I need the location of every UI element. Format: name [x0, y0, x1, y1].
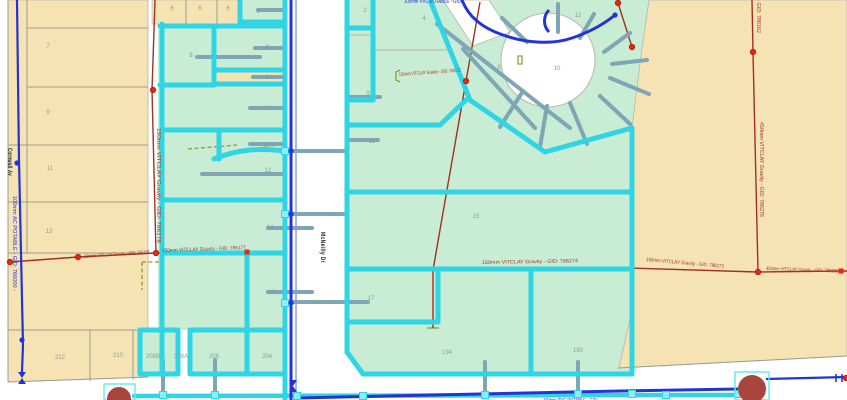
sewer-node[interactable]: [755, 269, 761, 275]
sewer-node[interactable]: [150, 87, 156, 93]
parcel-label: 14: [267, 225, 274, 231]
parcel-label: 194: [442, 350, 453, 356]
fitting-node[interactable]: [575, 391, 582, 398]
water-fitting-node[interactable]: [612, 12, 617, 17]
pump-station-marker[interactable]: [738, 375, 766, 400]
pipe-label-sewer: 450mm VITCLAY Gravity - GID: 786162: [755, 0, 761, 33]
water-fitting-node[interactable]: [288, 300, 293, 305]
sewer-node[interactable]: [615, 0, 621, 6]
parcel-label: 208B: [146, 354, 160, 360]
pipe-label-sewer: 450mm VITCLAY Gravity - GID: 786276: [758, 122, 764, 217]
parcel-label: 206: [209, 354, 220, 360]
pipe-label-sewer: 150mm VITCLAY Gravity - GID: 786178: [155, 128, 161, 243]
fitting-node[interactable]: [482, 392, 489, 399]
fitting-node[interactable]: [629, 391, 636, 398]
sewer-node[interactable]: [750, 49, 756, 55]
parcel-label: 12: [575, 13, 582, 19]
map-canvas[interactable]: 100mm AC POTABLE - GID: 766000 -100mm PV…: [0, 0, 847, 400]
fitting-node[interactable]: [282, 211, 289, 218]
fitting-node[interactable]: [282, 300, 289, 307]
pipe-label-water: 100mm AC POTABLE - GID: 766000 -: [11, 196, 17, 291]
water-fitting-node[interactable]: [288, 148, 293, 153]
water-fitting-node[interactable]: [288, 211, 293, 216]
street-label: McNeilly Dr: [319, 232, 325, 263]
parcel-label: 12: [265, 168, 272, 174]
water-fitting-node[interactable]: [14, 160, 19, 165]
pipe-label-water: 100mm PVC POTABLE - GID:: [404, 0, 462, 5]
fitting-node[interactable]: [282, 148, 289, 155]
fitting-node[interactable]: [294, 393, 301, 400]
parcel-label: 190: [573, 348, 584, 354]
parcel-label: 17: [368, 296, 375, 302]
culdesac-road: [501, 13, 595, 107]
parcel-label: 10: [265, 106, 272, 112]
fitting-node[interactable]: [360, 393, 367, 400]
parcel-label: 11: [47, 166, 54, 172]
sewer-node[interactable]: [629, 44, 635, 50]
parcel-label: 212: [55, 355, 66, 361]
parcel-label: 10: [554, 66, 561, 72]
sewer-node[interactable]: [153, 250, 159, 256]
parcel-label: 12A: [263, 143, 274, 149]
fitting-node[interactable]: [212, 392, 219, 399]
street-label: Cornwall Av: [6, 148, 12, 176]
parcel-label: 208A: [174, 354, 188, 360]
parcel-label: 11: [369, 139, 376, 145]
parcel-label: 16: [269, 290, 276, 296]
gis-map[interactable]: 100mm AC POTABLE - GID: 766000 -100mm PV…: [0, 0, 847, 400]
parcel-label: 210: [113, 353, 124, 359]
sewer-node[interactable]: [843, 375, 847, 381]
water-fitting-node[interactable]: [19, 337, 24, 342]
fitting-node[interactable]: [160, 392, 167, 399]
parcel-label: 13: [46, 229, 53, 235]
parcel-label: 204: [262, 354, 273, 360]
sewer-junction-node[interactable]: [839, 269, 844, 274]
pump-station-marker[interactable]: [107, 387, 131, 400]
sewer-node[interactable]: [463, 78, 469, 84]
sewer-node[interactable]: [75, 254, 81, 260]
fitting-node[interactable]: [663, 392, 670, 399]
parcel-label: 15: [473, 214, 480, 220]
